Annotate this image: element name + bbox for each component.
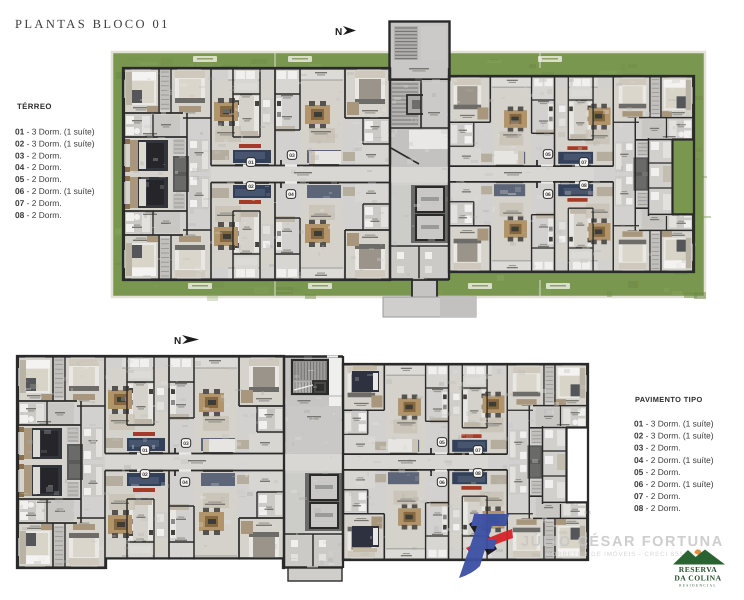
svg-text:PLANTAS BLOCO 01: PLANTAS BLOCO 01: [15, 17, 170, 31]
svg-text:DA COLINA: DA COLINA: [674, 574, 721, 583]
svg-text:06: 06: [545, 192, 551, 198]
svg-text:TÉRREO: TÉRREO: [17, 102, 52, 111]
svg-text:05: 05: [545, 152, 551, 158]
svg-text:04: 04: [288, 192, 294, 198]
svg-text:04 - 2 Dorm.: 04 - 2 Dorm.: [15, 162, 62, 172]
svg-text:N: N: [335, 27, 342, 38]
svg-text:JÚLIO CÉSAR FORTUNA: JÚLIO CÉSAR FORTUNA: [521, 533, 724, 550]
svg-text:02 - 3 Dorm. (1 suíte): 02 - 3 Dorm. (1 suíte): [634, 431, 714, 441]
svg-text:07 - 2 Dorm.: 07 - 2 Dorm.: [634, 491, 681, 501]
svg-text:RESIDENCIAL: RESIDENCIAL: [679, 584, 717, 588]
svg-text:02 - 3 Dorm. (1 suíte): 02 - 3 Dorm. (1 suíte): [15, 138, 95, 148]
svg-text:08: 08: [475, 471, 481, 477]
svg-text:PAVIMENTO TIPO: PAVIMENTO TIPO: [635, 395, 703, 404]
svg-text:06 - 2 Dorm. (1 suíte): 06 - 2 Dorm. (1 suíte): [634, 479, 714, 489]
svg-text:07: 07: [581, 160, 587, 166]
svg-text:03 - 2 Dorm.: 03 - 2 Dorm.: [634, 443, 681, 453]
svg-text:02: 02: [248, 184, 254, 190]
svg-text:07 - 2 Dorm.: 07 - 2 Dorm.: [15, 198, 62, 208]
svg-text:02: 02: [142, 472, 148, 478]
svg-text:06: 06: [439, 480, 445, 486]
svg-text:05 - 2 Dorm.: 05 - 2 Dorm.: [634, 467, 681, 477]
svg-text:N: N: [174, 336, 181, 347]
svg-text:05 - 2 Dorm.: 05 - 2 Dorm.: [15, 174, 62, 184]
svg-text:01: 01: [142, 448, 148, 454]
svg-text:05: 05: [439, 440, 445, 446]
svg-text:06 - 2 Dorm. (1 suíte): 06 - 2 Dorm. (1 suíte): [15, 186, 95, 196]
svg-text:CORRETOR DE IMÓVEIS - CRECI 85: CORRETOR DE IMÓVEIS - CRECI 8552: [546, 550, 688, 558]
svg-text:07: 07: [475, 448, 481, 454]
svg-text:03: 03: [183, 441, 189, 447]
svg-text:01 - 3 Dorm. (1 suíte): 01 - 3 Dorm. (1 suíte): [634, 419, 714, 429]
svg-text:04 - 2 Dorm. (1 suíte): 04 - 2 Dorm. (1 suíte): [634, 455, 714, 465]
svg-text:08 - 2 Dorm.: 08 - 2 Dorm.: [634, 503, 681, 513]
svg-text:01 - 3 Dorm. (1 suíte): 01 - 3 Dorm. (1 suíte): [15, 127, 95, 137]
svg-text:08: 08: [581, 183, 587, 189]
svg-text:03: 03: [289, 153, 295, 159]
svg-text:08 - 2 Dorm.: 08 - 2 Dorm.: [15, 210, 62, 220]
svg-text:04: 04: [182, 480, 188, 486]
svg-text:01: 01: [248, 160, 254, 166]
svg-text:03 - 2 Dorm.: 03 - 2 Dorm.: [15, 150, 62, 160]
